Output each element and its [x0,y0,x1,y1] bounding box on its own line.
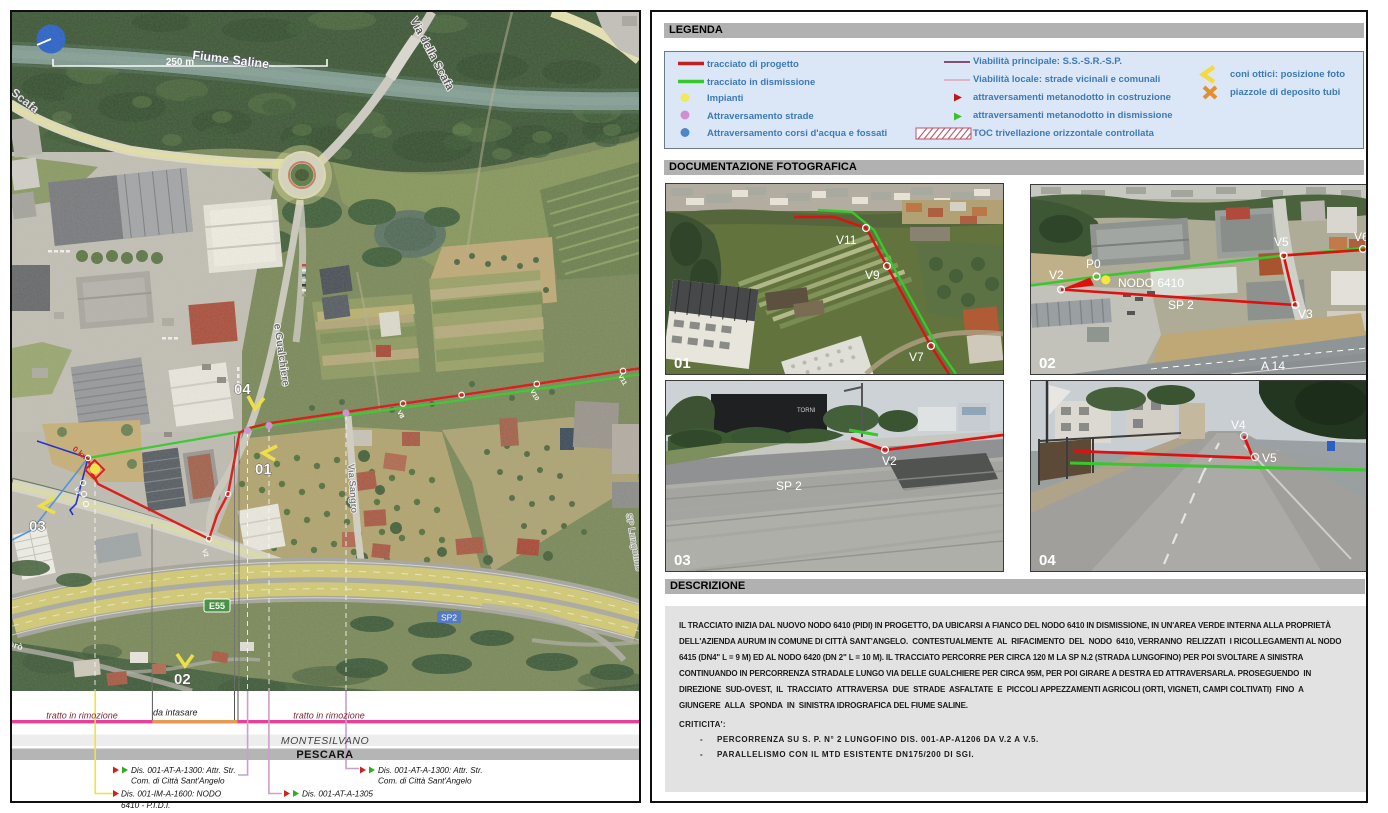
svg-text:MONTESILVANO: MONTESILVANO [281,735,369,747]
svg-text:tratto in rimozione: tratto in rimozione [46,711,118,721]
svg-text:Dis. 001-AT-A-1300: Attr. Str.: Dis. 001-AT-A-1300: Attr. Str. [131,766,236,775]
svg-text:V5: V5 [1262,451,1277,465]
svg-text:V6: V6 [1354,230,1368,244]
svg-text:01: 01 [674,355,691,372]
svg-text:NODO 6410: NODO 6410 [1118,276,1184,290]
svg-text:03: 03 [674,552,691,569]
svg-text:V11: V11 [836,233,857,247]
svg-text:6410 - P.I.D.I.: 6410 - P.I.D.I. [121,801,170,810]
svg-text:V2: V2 [882,454,897,468]
svg-text:PESCARA: PESCARA [296,749,353,761]
svg-text:V2: V2 [1049,268,1064,282]
svg-text:04: 04 [1039,552,1056,569]
svg-text:Com. di Città Sant'Angelo: Com. di Città Sant'Angelo [131,777,225,786]
svg-text:tratto in rimozione: tratto in rimozione [293,711,365,721]
svg-text:TORNI: TORNI [797,408,816,414]
svg-text:V3: V3 [1298,307,1313,321]
svg-text:Dis. 001-AT-A-1305: Dis. 001-AT-A-1305 [302,790,373,799]
svg-text:V5: V5 [1274,235,1289,249]
svg-text:Com. di Città Sant'Angelo: Com. di Città Sant'Angelo [378,777,472,786]
svg-text:P0: P0 [1086,257,1101,271]
svg-text:V9: V9 [865,268,880,282]
svg-text:Dis. 001-AT-A-1300: Attr. Str.: Dis. 001-AT-A-1300: Attr. Str. [378,766,483,775]
svg-text:Dis. 001-IM-A-1600: NODO: Dis. 001-IM-A-1600: NODO [121,790,222,799]
svg-text:da intasare: da intasare [153,708,198,718]
svg-text:A 14: A 14 [1261,359,1285,373]
svg-text:SP 2: SP 2 [776,479,802,493]
svg-text:V4: V4 [1231,418,1246,432]
svg-text:V7: V7 [909,350,924,364]
svg-text:SP 2: SP 2 [1168,298,1194,312]
svg-text:02: 02 [1039,355,1056,372]
